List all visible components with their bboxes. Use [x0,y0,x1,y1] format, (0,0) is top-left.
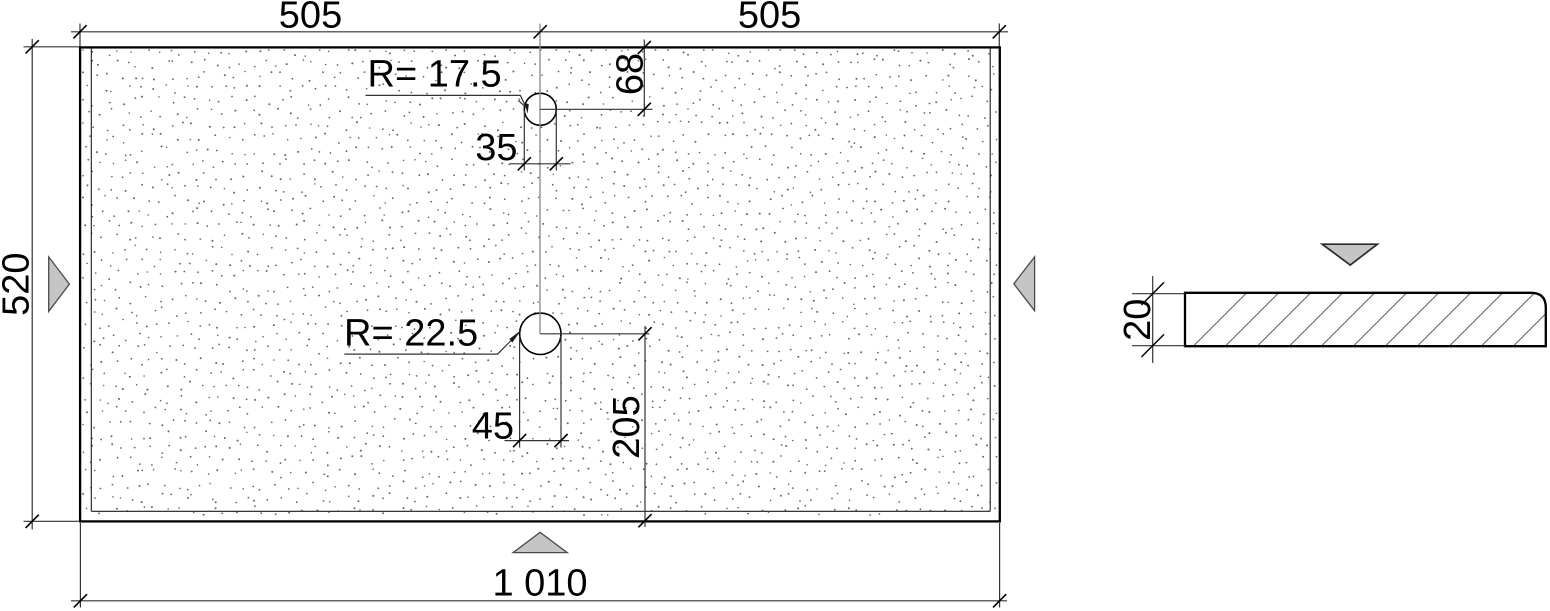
svg-text:520: 520 [0,252,38,315]
svg-text:45: 45 [472,405,514,447]
svg-text:R= 17.5: R= 17.5 [368,54,502,96]
svg-text:505: 505 [279,0,342,37]
svg-text:68: 68 [610,53,652,95]
svg-text:R= 22.5: R= 22.5 [344,312,478,354]
svg-text:20: 20 [1117,299,1159,341]
svg-text:205: 205 [606,395,648,458]
svg-text:1 010: 1 010 [492,563,587,605]
svg-text:505: 505 [738,0,801,37]
svg-text:35: 35 [475,127,517,169]
